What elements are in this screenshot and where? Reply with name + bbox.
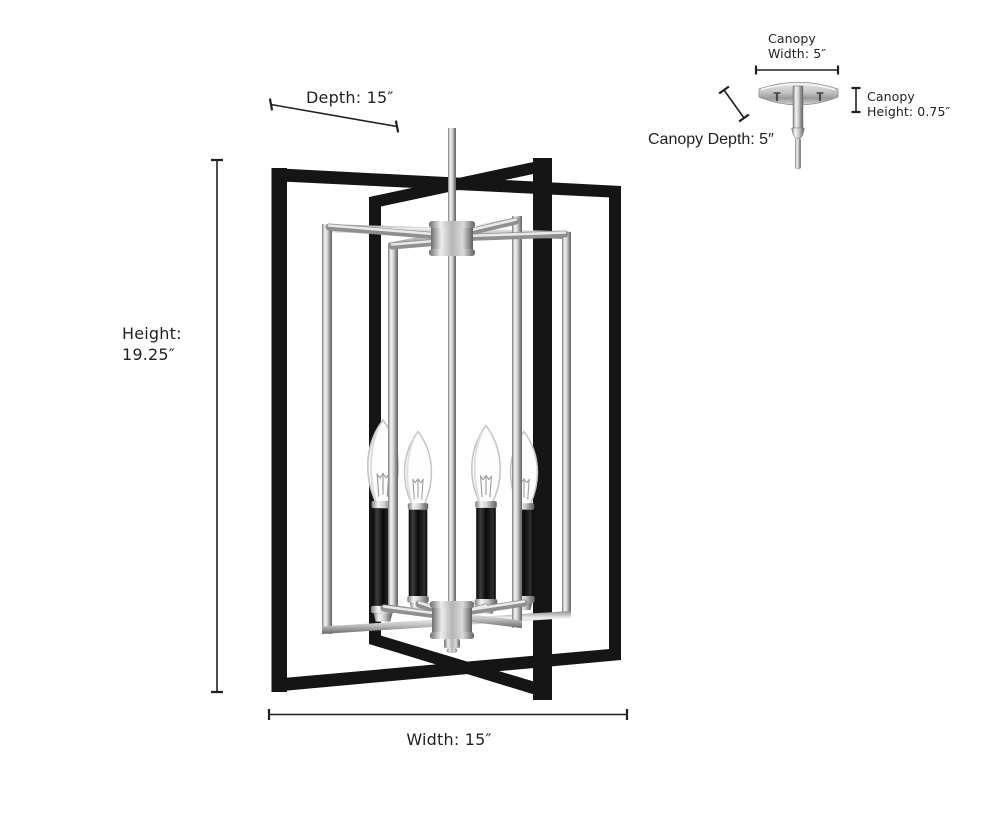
depth-label: Depth: 15″ bbox=[306, 88, 394, 107]
height-dimension: Height: 19.25″ bbox=[122, 160, 223, 692]
canopy-stem bbox=[792, 86, 805, 169]
center-rod bbox=[448, 128, 456, 612]
width-dimension: Width: 15″ bbox=[269, 709, 627, 749]
candle-back-left bbox=[405, 432, 432, 611]
canopy-depth-dimension: Canopy Depth: 5″ bbox=[648, 87, 774, 149]
canopy-width-dimension: Canopy Width: 5″ bbox=[756, 31, 838, 75]
canopy-detail: Canopy Width: 5″ Canopy Height: 0.75″ Ca… bbox=[648, 31, 951, 169]
depth-dimension: Depth: 15″ bbox=[270, 88, 398, 132]
candle-front-right bbox=[472, 426, 500, 614]
dimension-diagram: Height: 19.25″ Width: 15″ Depth: 15″ bbox=[0, 0, 1000, 824]
height-label-line2: 19.25″ bbox=[122, 345, 175, 364]
canopy-height-label-line1: Canopy bbox=[867, 89, 915, 104]
canopy-depth-label: Canopy Depth: 5″ bbox=[648, 131, 774, 148]
canopy-width-label-line2: Width: 5″ bbox=[768, 46, 826, 61]
canopy-height-dimension: Canopy Height: 0.75″ bbox=[852, 88, 951, 119]
top-hub bbox=[429, 221, 475, 256]
bottom-finial bbox=[444, 639, 460, 648]
width-label: Width: 15″ bbox=[406, 730, 491, 749]
canopy-width-label-line1: Canopy bbox=[768, 31, 816, 46]
height-label-line1: Height: bbox=[122, 324, 182, 343]
canopy-height-label-line2: Height: 0.75″ bbox=[867, 104, 951, 119]
bottom-hub bbox=[430, 601, 474, 653]
pendant-fixture bbox=[272, 128, 622, 700]
dimension-diagram-page: Height: 19.25″ Width: 15″ Depth: 15″ bbox=[0, 0, 1000, 824]
